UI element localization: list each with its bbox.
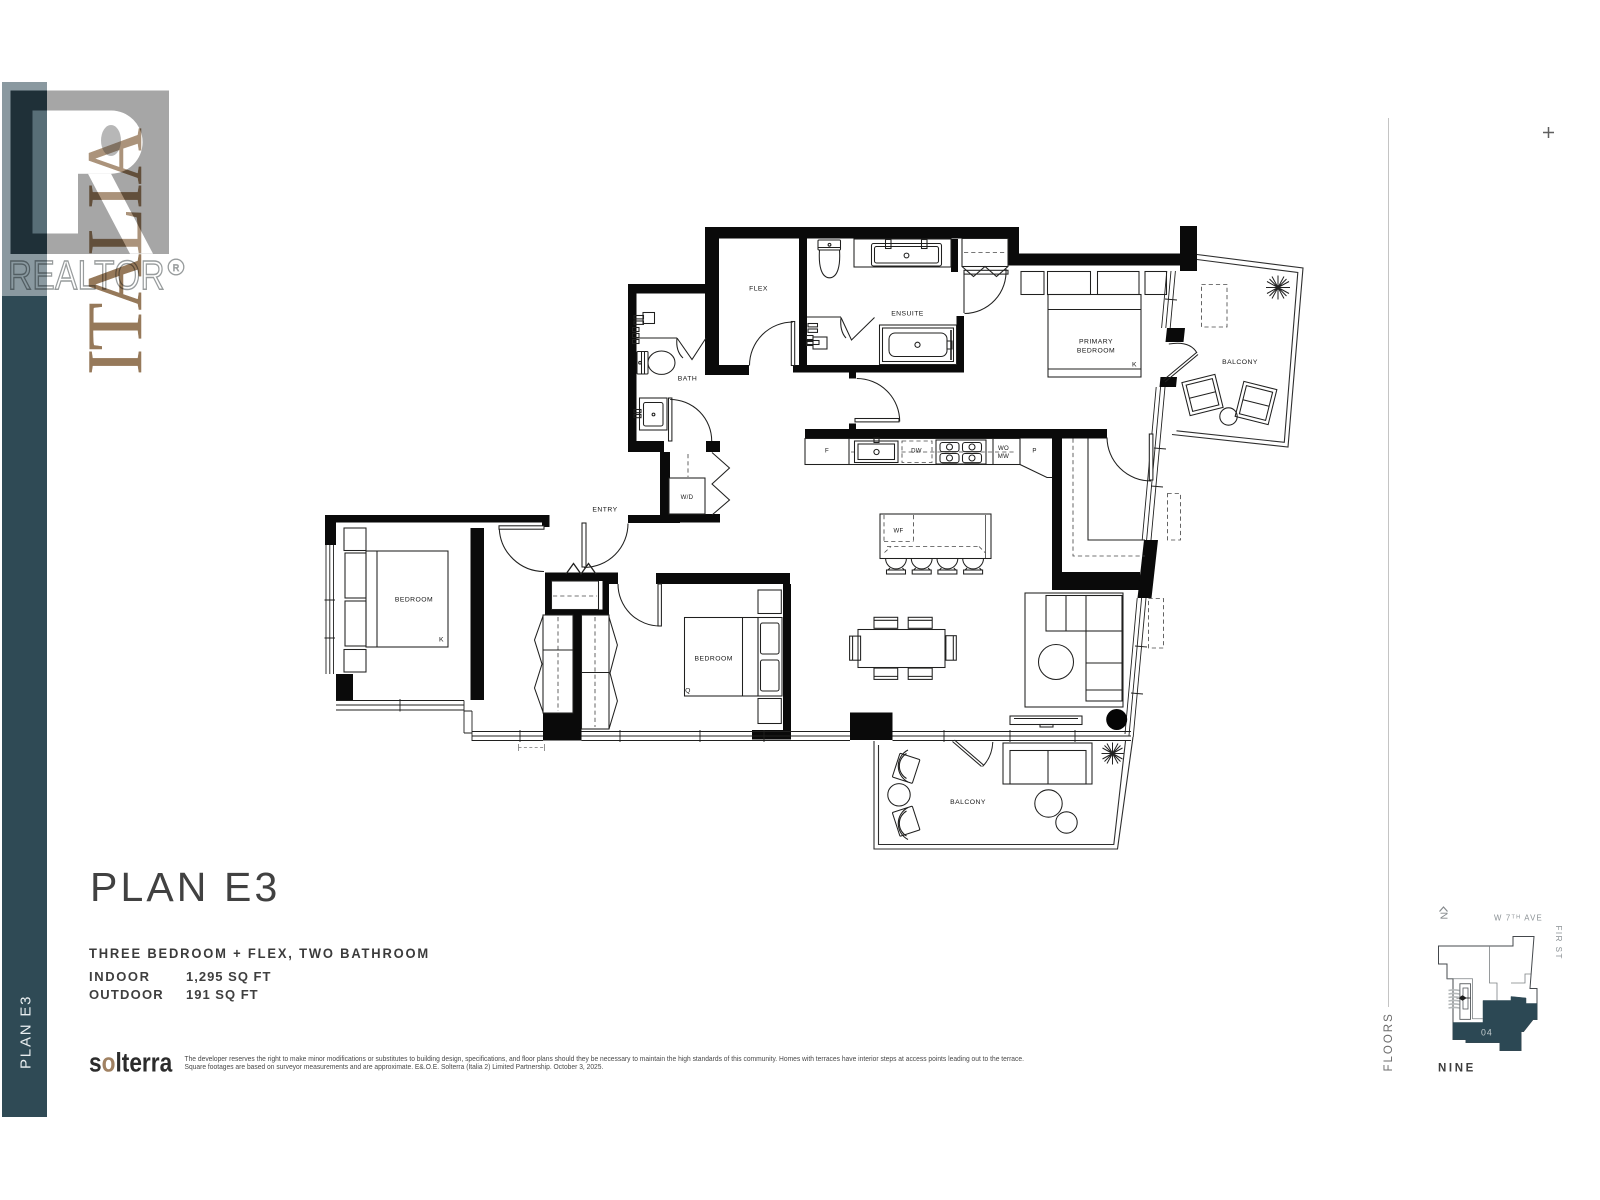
svg-text:WF: WF	[893, 528, 903, 535]
svg-text:PLAN E3: PLAN E3	[90, 864, 280, 910]
svg-text:FIR ST: FIR ST	[1554, 926, 1563, 960]
svg-text:04: 04	[1481, 1028, 1493, 1038]
svg-text:W/D: W/D	[681, 494, 694, 501]
svg-text:ENTRY: ENTRY	[592, 507, 617, 514]
svg-text:OUTDOOR: OUTDOOR	[89, 987, 164, 1002]
svg-text:FLOORS: FLOORS	[1383, 1012, 1395, 1071]
svg-text:N: N	[1439, 912, 1451, 920]
svg-text:F: F	[825, 448, 829, 455]
svg-text:FLEX: FLEX	[749, 286, 768, 293]
svg-text:ENSUITE: ENSUITE	[891, 311, 924, 318]
svg-text:PRIMARY: PRIMARY	[1079, 339, 1113, 346]
svg-text:WO: WO	[998, 445, 1009, 452]
svg-text:DW: DW	[911, 448, 922, 455]
svg-text:BALCONY: BALCONY	[950, 799, 986, 806]
svg-text:Square footages are based on s: Square footages are based on surveyor me…	[185, 1062, 604, 1072]
svg-text:REALTOR: REALTOR	[8, 252, 165, 298]
svg-text:K: K	[439, 637, 444, 644]
svg-text:THREE BEDROOM + FLEX, TWO BATH: THREE BEDROOM + FLEX, TWO BATHROOM	[89, 946, 430, 962]
svg-text:191 SQ FT: 191 SQ FT	[186, 987, 259, 1002]
svg-text:1,295 SQ FT: 1,295 SQ FT	[186, 969, 271, 984]
svg-text:BATH: BATH	[678, 376, 697, 383]
svg-text:Q: Q	[685, 688, 691, 695]
svg-text:MW: MW	[998, 453, 1009, 460]
svg-text:BEDROOM: BEDROOM	[1077, 348, 1115, 355]
svg-text:BEDROOM: BEDROOM	[395, 597, 433, 604]
svg-text:R: R	[173, 263, 180, 273]
svg-text:NINE: NINE	[1438, 1063, 1476, 1075]
svg-text:BALCONY: BALCONY	[1222, 359, 1258, 366]
svg-text:solterra: solterra	[89, 1048, 173, 1078]
svg-text:PLAN E3: PLAN E3	[18, 995, 35, 1069]
svg-text:BEDROOM: BEDROOM	[695, 656, 733, 663]
svg-text:K: K	[1132, 362, 1137, 369]
svg-text:P: P	[1032, 448, 1036, 455]
svg-text:INDOOR: INDOOR	[89, 969, 151, 984]
